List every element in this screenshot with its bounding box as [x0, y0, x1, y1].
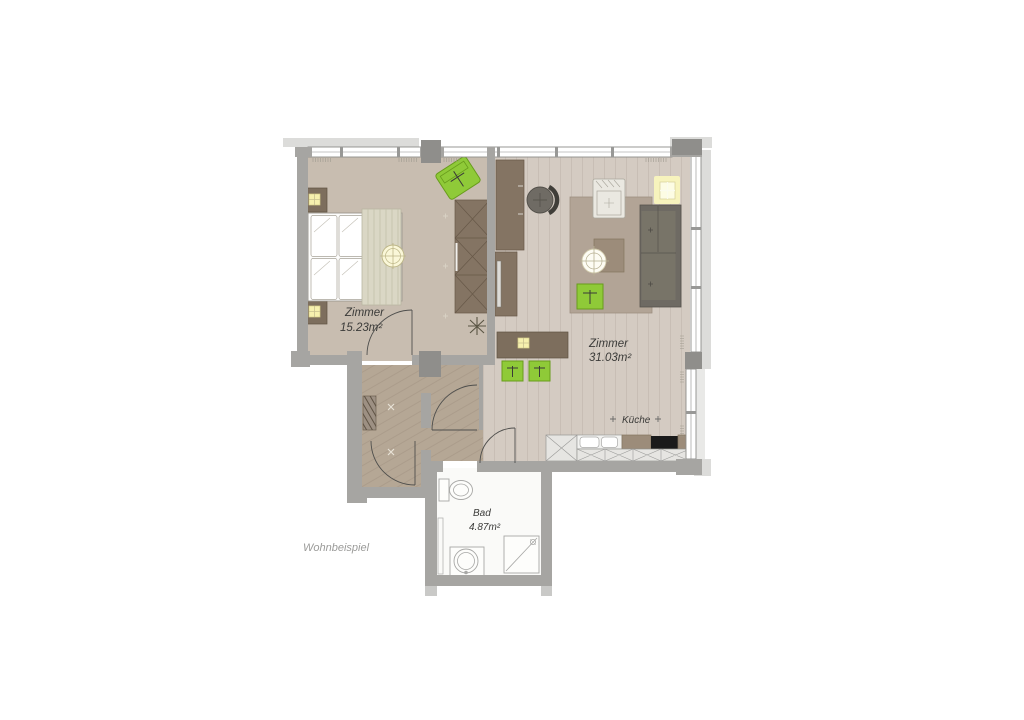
dining-chair-icon — [529, 361, 550, 381]
kitchen-sink-icon — [577, 435, 622, 449]
pillow — [339, 216, 365, 257]
window-top-living — [441, 147, 672, 157]
kitchen-label: Küche — [622, 415, 651, 426]
office-chair-icon — [527, 187, 557, 213]
living-room-label: Zimmer — [588, 338, 629, 350]
desk-icon — [496, 160, 524, 250]
pillow — [311, 259, 337, 300]
bathroom-area: 4.87m² — [469, 522, 501, 533]
bedroom-label: Zimmer — [344, 307, 385, 319]
dining-chair-icon — [502, 361, 523, 381]
dining-table-icon — [497, 332, 568, 358]
toilet-icon — [439, 479, 473, 501]
cooktop-icon — [651, 436, 678, 449]
bedroom-area: 15.23m² — [340, 322, 383, 334]
ottoman-icon — [577, 284, 603, 309]
living-room-area: 31.03m² — [589, 352, 632, 364]
pillow — [339, 259, 365, 300]
kitchen-worktop — [622, 435, 651, 449]
bathroom-label: Bad — [473, 508, 491, 519]
window-lamp-icon — [654, 176, 680, 204]
plan-caption: Wohnbeispiel — [303, 542, 370, 554]
shower-icon — [504, 536, 539, 573]
floor-plan-drawing: Zimmer 15.23m² Zimmer 31.03m² Küche Bad … — [0, 0, 1024, 720]
pillar — [421, 140, 441, 163]
tv-sideboard-icon — [495, 252, 517, 316]
sofa-icon — [640, 205, 681, 307]
tv-icon — [497, 261, 501, 307]
pillar — [685, 352, 702, 369]
pillar — [419, 351, 441, 377]
pillar — [672, 139, 702, 155]
window-right-lower — [686, 369, 696, 459]
kitchen-base-cabinets — [577, 449, 690, 461]
armchair-icon — [593, 179, 625, 218]
coat-rack-icon — [363, 396, 376, 430]
wardrobe-icon — [455, 200, 490, 313]
window-top-bedroom — [308, 147, 422, 157]
floor-plan-page: Zimmer 15.23m² Zimmer 31.03m² Küche Bad … — [0, 0, 1024, 720]
washbasin-icon — [450, 547, 484, 577]
pillow — [311, 216, 337, 257]
window-right-upper — [691, 155, 701, 352]
